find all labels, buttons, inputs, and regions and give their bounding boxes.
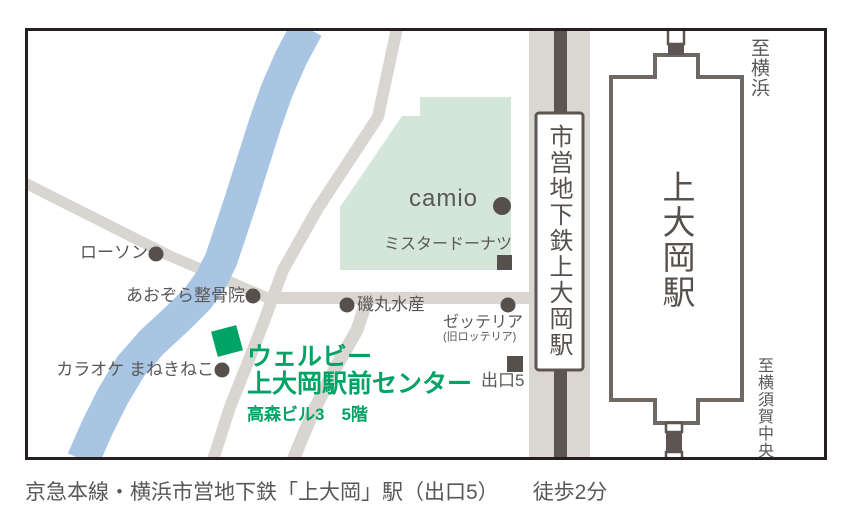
zetteria-dot-marker bbox=[501, 298, 516, 313]
zetteria-sub-label: (旧ロッテリア) bbox=[443, 332, 516, 344]
to-yokosuka-label: 至横須賀中央 bbox=[751, 357, 775, 459]
destination-name-line2: 上大岡駅前センター bbox=[247, 372, 472, 397]
caption-walk-time: 徒歩2分 bbox=[533, 481, 608, 504]
to-yokohama-label: 至横浜 bbox=[745, 38, 772, 98]
caption-route: 京急本線・横浜市営地下鉄「上大岡」駅（出口5） bbox=[25, 481, 499, 504]
aozora-label: あおぞら整骨院 bbox=[126, 287, 245, 305]
karaoke-label: カラオケ まねきねこ bbox=[56, 361, 214, 379]
subway-line-bottom bbox=[554, 370, 567, 460]
track-tick bbox=[668, 44, 684, 55]
aozora-dot-marker bbox=[246, 289, 261, 304]
camio-label: camio bbox=[409, 186, 478, 211]
access-caption: 京急本線・横浜市営地下鉄「上大岡」駅（出口5）徒歩2分 bbox=[25, 476, 607, 506]
isomaru-label: 磯丸水産 bbox=[357, 296, 425, 314]
lawson-label: ローソン bbox=[80, 244, 148, 262]
destination-building: 高森ビル3 5階 bbox=[247, 406, 472, 423]
zetteria-label: ゼッテリア bbox=[443, 315, 523, 332]
destination-label: ウェルビー 上大岡駅前センター 高森ビル3 5階 bbox=[247, 345, 472, 423]
track-tick bbox=[666, 432, 682, 452]
subway-station-label: 市営地下鉄上大岡駅 bbox=[546, 124, 571, 358]
karaoke-dot-marker bbox=[215, 363, 230, 378]
mister-donut-square-marker bbox=[497, 255, 512, 270]
exit5-square-marker bbox=[507, 356, 523, 372]
mister-donut-label: ミスタードーナツ bbox=[384, 237, 512, 254]
lawson-dot-marker bbox=[149, 247, 164, 262]
access-map: ローソン あおぞら整骨院 カラオケ まねきねこ 磯丸水産 camio ミスタード… bbox=[0, 0, 849, 531]
track-tick bbox=[668, 29, 684, 44]
isomaru-dot-marker bbox=[340, 298, 355, 313]
map-canvas: ローソン あおぞら整骨院 カラオケ まねきねこ 磯丸水産 camio ミスタード… bbox=[25, 28, 827, 460]
keikyu-station-label: 上大岡駅 bbox=[659, 170, 693, 310]
camio-dot-marker bbox=[493, 197, 511, 215]
destination-green-marker bbox=[211, 325, 243, 357]
destination-name-line1: ウェルビー bbox=[247, 345, 472, 370]
subway-line-top bbox=[554, 28, 567, 114]
exit5-label: 出口5 bbox=[481, 372, 524, 390]
track-tick bbox=[666, 423, 682, 432]
